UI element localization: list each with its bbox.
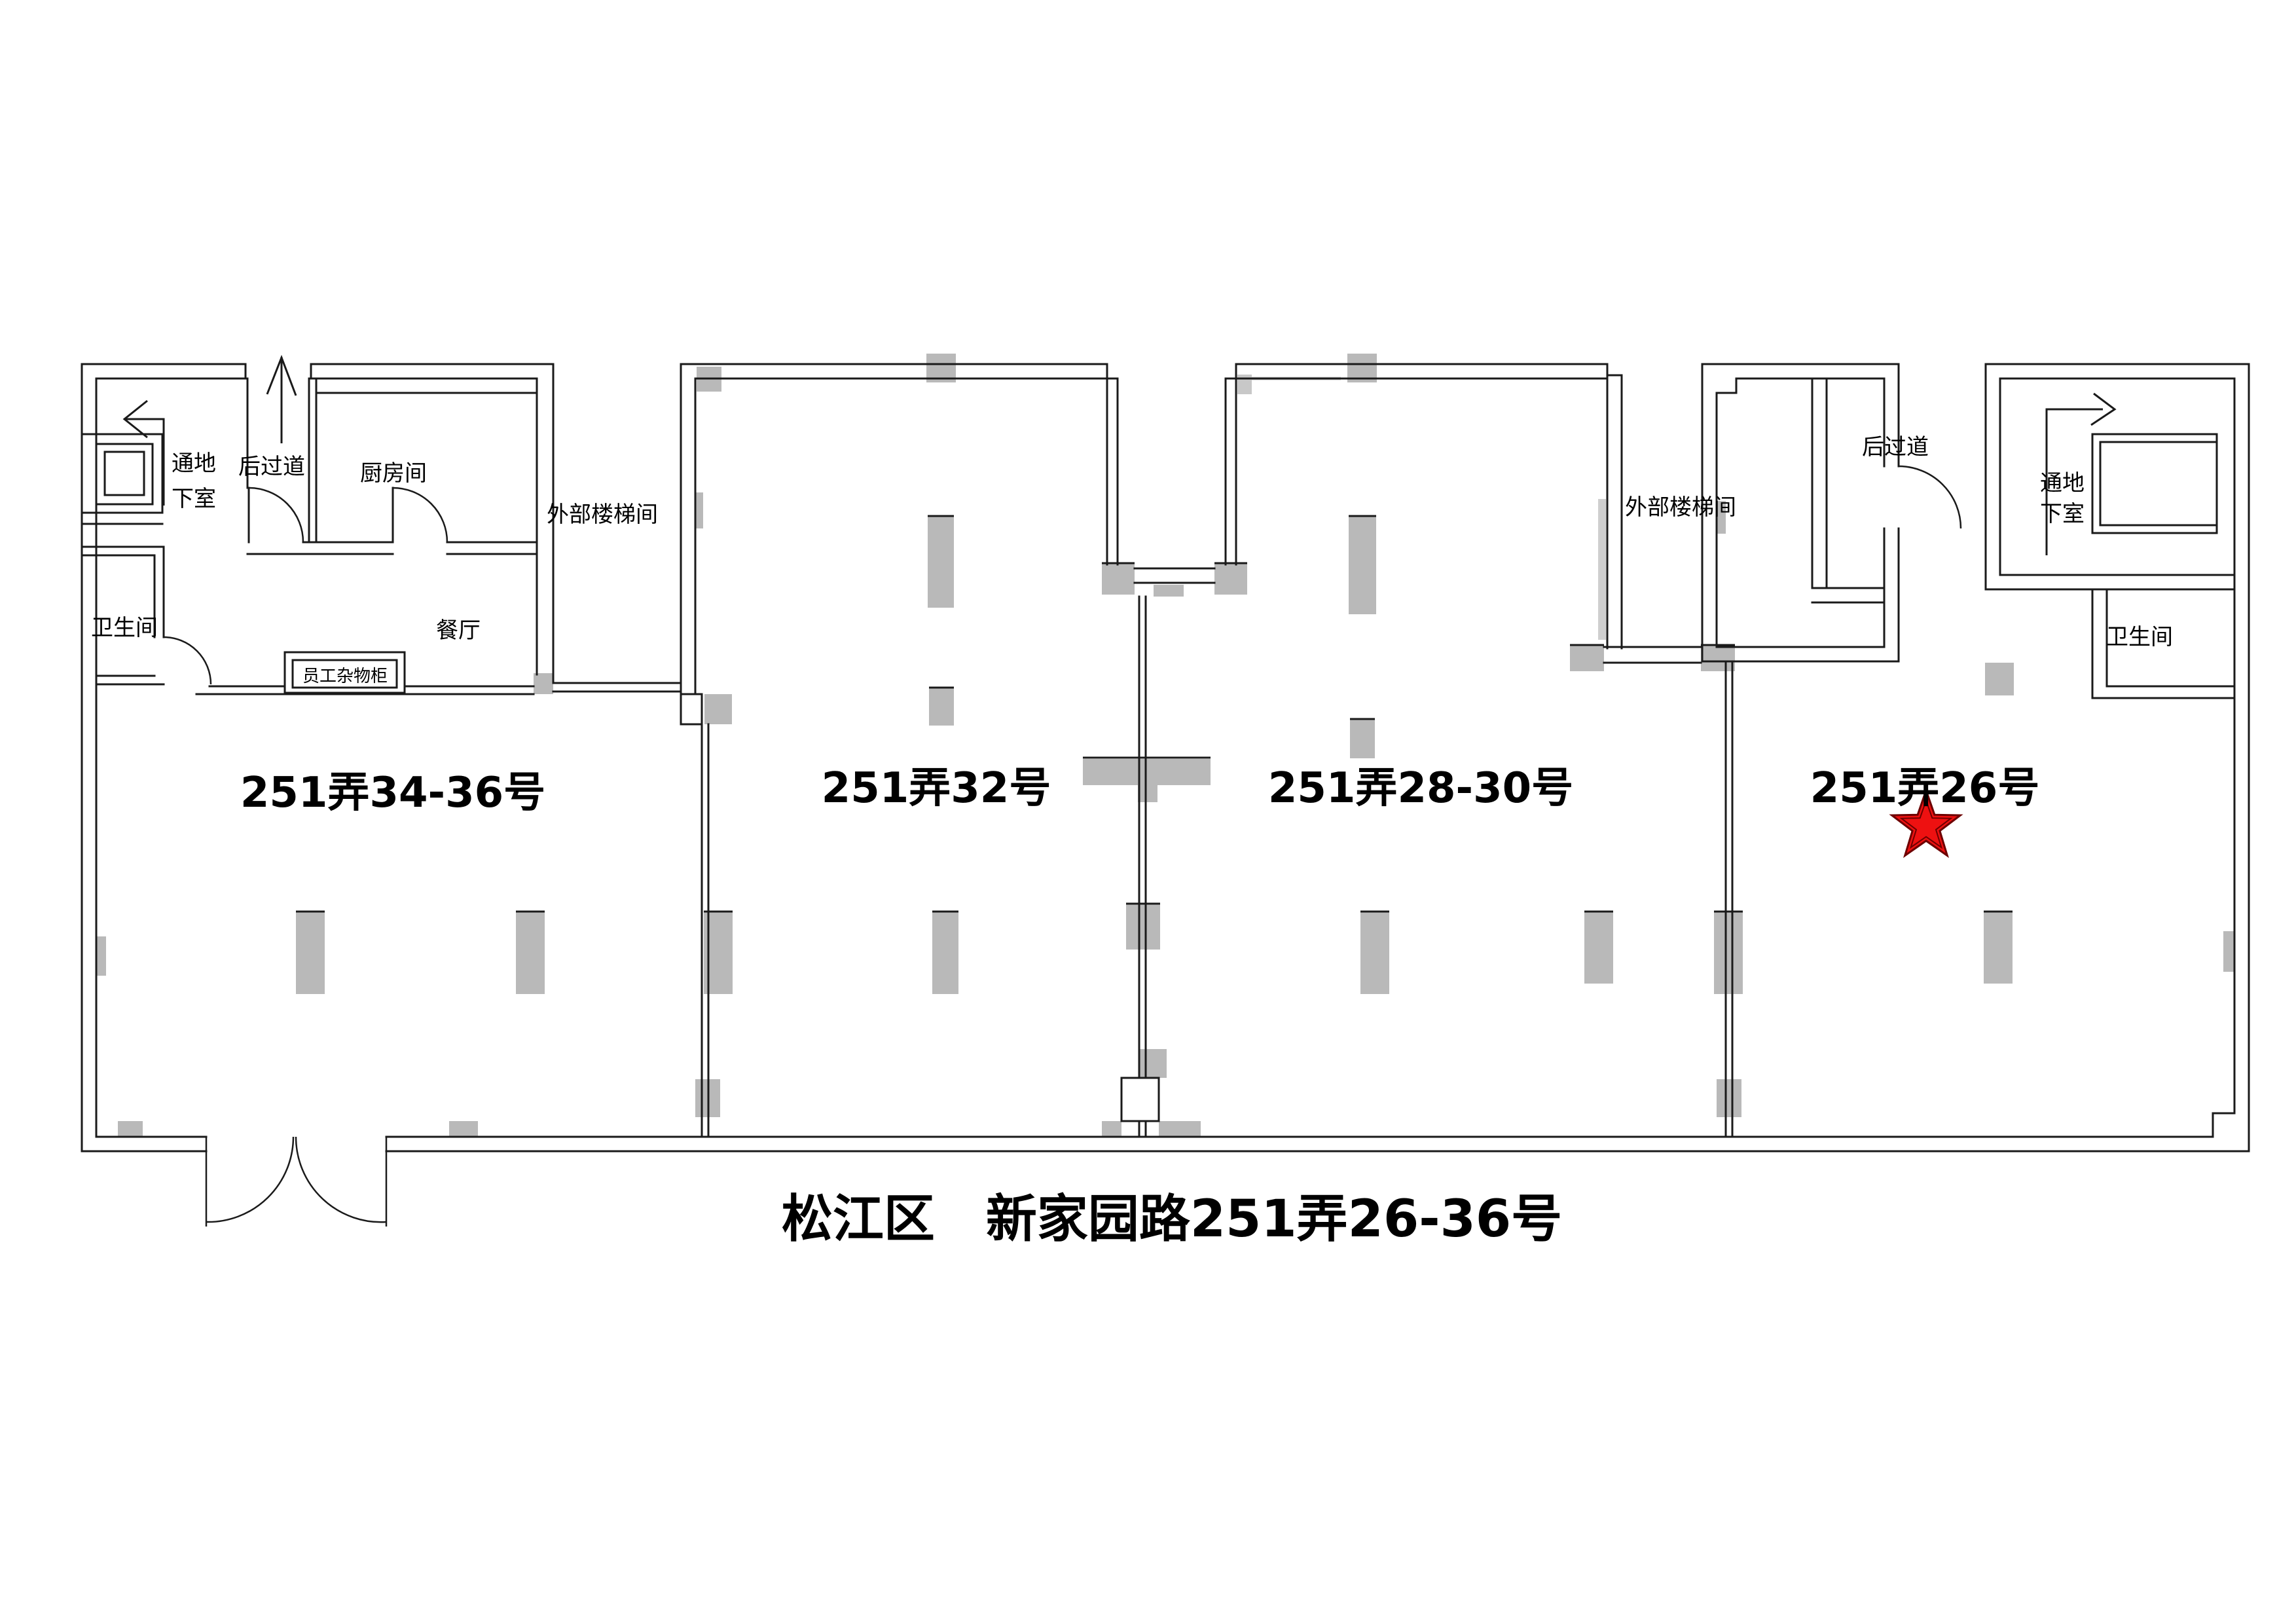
wall-end-caps: [246, 364, 1986, 378]
pillar: [1360, 912, 1389, 994]
pillar: [704, 694, 732, 724]
pillar: [1985, 663, 2014, 695]
pillar: [1139, 1049, 1167, 1078]
dumbwaiter-box-left: [105, 452, 144, 495]
unit3-top-wall: [1226, 364, 1607, 378]
wall-junction-box: [681, 694, 702, 724]
unit-label-28-30: 251弄28-30号: [1268, 764, 1573, 813]
entrance-door-arcs: [206, 1137, 386, 1222]
pillar: [1102, 1121, 1121, 1137]
room-label-basement-right-2: 下室: [2040, 501, 2085, 527]
dumbwaiter-box-right-inner: [2100, 442, 2217, 525]
room-label-staff-locker: 员工杂物柜: [302, 667, 388, 686]
door-group: [164, 466, 1961, 1227]
arrow-up-icon: [267, 357, 296, 443]
stairwell-right-bottom-wall: [1604, 647, 1732, 1137]
room-label-bathroom-left: 卫生间: [91, 615, 158, 641]
unit2-top-wall: [681, 364, 1118, 378]
room-label-bathroom-right: 卫生间: [2106, 624, 2173, 650]
pillar: [1717, 1079, 1741, 1117]
pillar: [516, 912, 545, 994]
pillar: [449, 1121, 478, 1137]
cluster-left-top: [311, 364, 553, 378]
pillar: [1214, 563, 1247, 595]
route-arrow-group: [124, 357, 2115, 555]
room-label-basement-left-1: 通地: [172, 451, 216, 477]
unit2-left-wall: [681, 364, 708, 1137]
floor-plan-page: 通地 下室 后过道 厨房间 卫生间 餐厅 员工杂物柜 外部楼梯间 外部楼梯间 后…: [0, 0, 2296, 1624]
pillar: [1350, 719, 1375, 758]
pillar: [118, 1121, 143, 1137]
pillar: [1714, 912, 1743, 994]
unit-label-34-36: 251弄34-36号: [240, 769, 545, 817]
pillar: [1159, 1121, 1201, 1137]
pillar: [1138, 785, 1157, 802]
wall-band: [1598, 499, 1606, 640]
door-arc-corridor-left: [249, 488, 303, 542]
room-label-stairwell-right: 外部楼梯间: [1625, 494, 1736, 521]
pillar: [534, 673, 553, 694]
pillar: [1126, 904, 1160, 950]
plan-title: 松江区 新家园路251弄26-36号: [782, 1190, 1562, 1249]
pillar: [1154, 585, 1184, 597]
room-label-corridor-left: 后过道: [238, 454, 305, 480]
pillar: [1349, 516, 1376, 614]
room-label-dining: 餐厅: [436, 618, 481, 644]
floor-plan-drawing: 通地 下室 后过道 厨房间 卫生间 餐厅 员工杂物柜 外部楼梯间 外部楼梯间 后…: [0, 0, 2296, 1624]
door-arc-bathroom-left: [164, 637, 211, 684]
wall-junction-box: [1121, 1078, 1159, 1121]
room-label-stairwell-left: 外部楼梯间: [547, 502, 658, 528]
pillar: [932, 912, 958, 994]
middle-notch-walls: [1107, 364, 1236, 1137]
pillar: [929, 688, 954, 726]
corridor-kitchen-walls: [196, 378, 537, 694]
pillar: [296, 912, 325, 994]
pillar: [1584, 912, 1613, 984]
pillar: [1102, 563, 1135, 595]
pillar: [1984, 912, 2013, 984]
unit-label-32: 251弄32号: [822, 764, 1051, 813]
pillar: [1701, 645, 1735, 671]
room-label-basement-left-2: 下室: [172, 486, 216, 512]
pillar: [1570, 645, 1604, 671]
label-group: 通地 下室 后过道 厨房间 卫生间 餐厅 员工杂物柜 外部楼梯间 外部楼梯间 后…: [91, 434, 2173, 1249]
unit3-right-wall: [1607, 364, 1622, 648]
wall-tab: [695, 492, 703, 528]
unit-label-26: 251弄26号: [1810, 764, 2040, 813]
pillar: [96, 936, 106, 976]
stairwell-left-bottom-wall: [553, 683, 681, 692]
pillar: [2223, 931, 2234, 972]
door-arc-kitchen: [393, 488, 447, 542]
room-label-kitchen: 厨房间: [360, 460, 427, 487]
door-arc-corridor-right: [1899, 466, 1961, 528]
pillar: [928, 516, 954, 608]
room-label-corridor-right: 后过道: [1862, 434, 1929, 460]
room-label-basement-right-1: 通地: [2040, 470, 2085, 496]
